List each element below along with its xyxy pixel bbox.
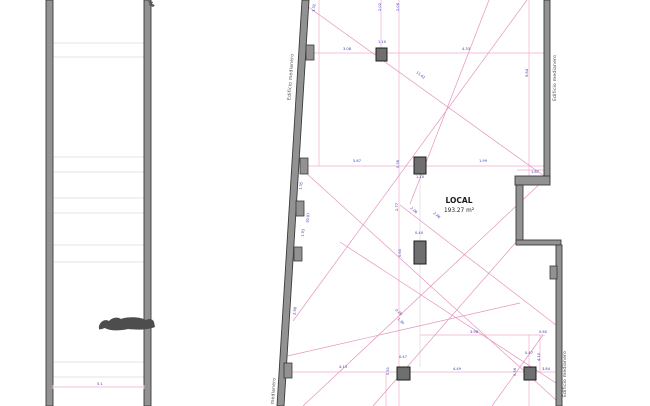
dimension-text: 1.99 [479,159,488,163]
dimension-text: 0.51 [386,367,390,375]
wall-pilaster [300,158,308,174]
dimension-text: 3.98 [470,330,479,334]
wall-pilaster [294,247,302,261]
dimension-text: 0.47 [525,351,533,355]
structural-column [397,367,410,380]
dimension-text: 11.61 [415,71,426,80]
dimension-line-diagonal [373,241,517,406]
structural-column [376,48,387,61]
dimension-text: 4.13 [339,365,347,369]
dimension-text: 2.46 [432,211,441,220]
wall [516,185,523,243]
wall-pilaster [296,201,304,216]
boundary-label: Edificio medianero [268,378,277,406]
wall [46,0,53,406]
dimension-text: 1.10 [378,40,387,44]
boundary-label: Edificio medianero [562,351,568,397]
dimension-text: 10.07 [305,213,310,224]
wall [515,176,550,185]
dimension-text: 3.08 [343,47,352,51]
dimension-text: 0.40 [415,231,424,235]
dimension-text: 2.02 [378,3,382,11]
room-name-label: LOCAL [446,196,473,205]
dimension-text: 1.30 [396,317,405,326]
dimension-text: 1.87 [531,170,539,174]
dimension-text: 0.36 [396,159,400,168]
dimension-text: 4.49 [453,367,462,371]
dimension-text: 5.1 [97,382,103,386]
boundary-label: Edificio medianero [552,55,558,101]
dimension-text: 4.10 [537,352,541,361]
dimension-text: 5.64 [525,68,529,77]
wall [544,0,550,178]
dimension-text: 2.77 [395,203,399,211]
dimension-text: 5.67 [353,159,361,163]
boundary-label: Edificio medianero [286,54,295,101]
dimension-text: 2.06 [396,2,400,11]
dimension-text: 1.93 [301,229,306,237]
wall-pilaster [284,363,292,378]
wall-pilaster [550,266,557,279]
floor-plan-drawing: 5.13.322.022.063.081.104.335.6411.611.35… [0,0,650,406]
dimension-text: 0.60 [539,330,548,334]
dimension-text: 0.60 [398,248,402,257]
dimension-text: 2.98 [293,306,298,315]
dimension-text: 1.10 [416,175,425,179]
dimension-text: 3.32 [312,4,317,12]
structural-column [414,157,426,174]
wall [516,240,561,245]
wall-pilaster [306,45,314,60]
dimension-text: 1.35 [299,182,304,190]
dimension-text: 0.36 [513,367,517,376]
structural-column [414,241,426,264]
wall [144,0,151,406]
dimension-line-diagonal [307,6,544,176]
room-area-label: 193.27 m² [444,207,474,214]
dimension-text: 4.33 [462,47,470,51]
dimension-text: 0.47 [399,355,407,359]
structural-column [524,367,536,380]
dimension-line-diagonal [400,205,556,325]
floor-plan-svg: 5.13.322.022.063.081.104.335.6411.611.35… [0,0,650,406]
dimension-line-diagonal [293,0,527,321]
dimension-text: 3.84 [542,367,551,371]
